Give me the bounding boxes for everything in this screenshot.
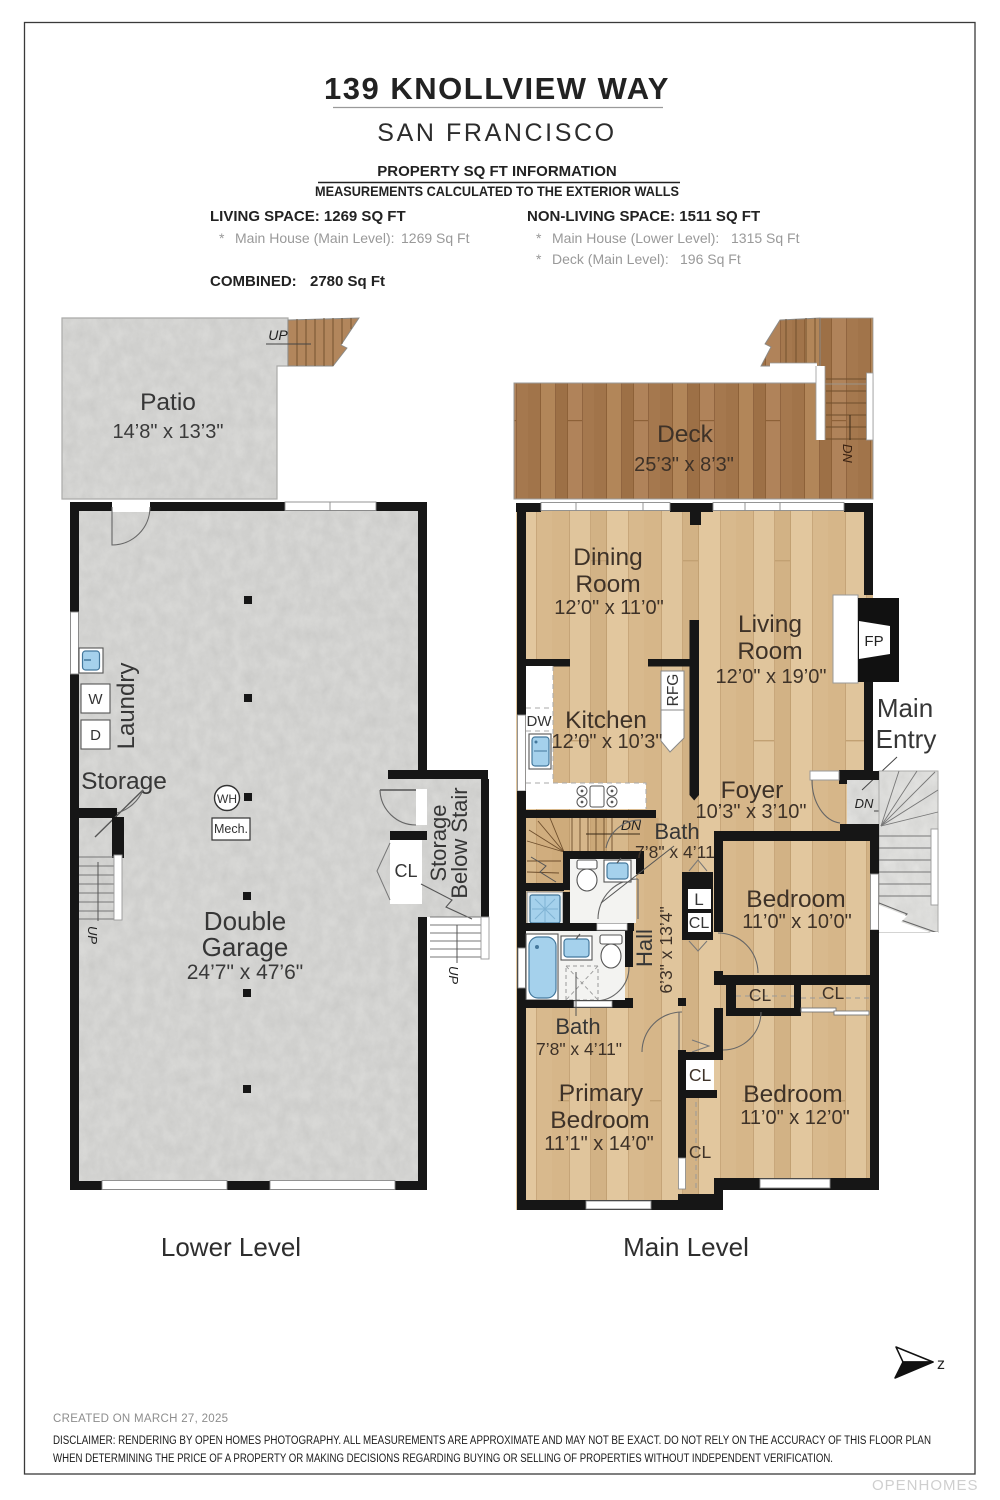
svg-text:Living: Living [738, 611, 802, 638]
svg-text:Main House (Lower Level):: Main House (Lower Level): [552, 230, 719, 246]
svg-text:COMBINED:: COMBINED: [210, 273, 297, 290]
svg-text:D: D [90, 727, 101, 744]
svg-text:FP: FP [864, 633, 883, 650]
svg-text:Bath: Bath [654, 819, 699, 844]
svg-text:Entry: Entry [876, 724, 937, 754]
svg-text:7’8" x 4’11": 7’8" x 4’11" [635, 842, 721, 862]
svg-text:MEASUREMENTS CALCULATED TO THE: MEASUREMENTS CALCULATED TO THE EXTERIOR … [315, 183, 679, 199]
svg-text:Bath: Bath [555, 1014, 600, 1039]
svg-text:6’3" x 13’4": 6’3" x 13’4" [656, 906, 676, 993]
svg-text:Laundry: Laundry [113, 663, 140, 750]
svg-text:Deck (Main Level):: Deck (Main Level): [552, 251, 669, 267]
svg-text:SAN FRANCISCO: SAN FRANCISCO [377, 119, 616, 147]
svg-text:Kitchen: Kitchen [565, 707, 647, 734]
svg-text:Room: Room [575, 571, 640, 598]
svg-text:*: * [219, 230, 225, 246]
svg-text:Primary: Primary [559, 1080, 644, 1107]
svg-text:UP: UP [268, 327, 288, 343]
svg-text:WH: WH [217, 792, 237, 806]
svg-text:Main Level: Main Level [623, 1232, 749, 1262]
svg-text:OPENHOMES: OPENHOMES [872, 1477, 979, 1494]
svg-text:DN: DN [840, 444, 855, 463]
svg-text:*: * [536, 251, 542, 267]
svg-text:DISCLAIMER: RENDERING BY OPEN: DISCLAIMER: RENDERING BY OPEN HOMES PHOT… [53, 1435, 931, 1447]
svg-text:Dining: Dining [573, 544, 642, 571]
svg-text:139 KNOLLVIEW WAY: 139 KNOLLVIEW WAY [324, 71, 670, 106]
svg-text:Hall: Hall [632, 929, 657, 967]
svg-text:CL: CL [689, 1065, 712, 1085]
svg-text:7’8" x 4’11": 7’8" x 4’11" [536, 1039, 622, 1059]
svg-text:Bedroom: Bedroom [746, 886, 845, 913]
svg-text:CL: CL [689, 915, 710, 932]
svg-text:DN: DN [855, 796, 874, 811]
svg-text:Lower Level: Lower Level [161, 1232, 301, 1262]
svg-text:W: W [88, 691, 103, 708]
svg-text:24’7" x 47’6": 24’7" x 47’6" [187, 961, 303, 984]
svg-text:12’0" x 19’0": 12’0" x 19’0" [716, 666, 827, 688]
svg-text:CREATED ON MARCH 27, 2025: CREATED ON MARCH 27, 2025 [53, 1413, 228, 1425]
svg-text:UP: UP [446, 966, 461, 984]
svg-text:Main: Main [877, 693, 933, 723]
svg-text:L: L [694, 890, 703, 909]
svg-text:2780 Sq Ft: 2780 Sq Ft [310, 273, 385, 290]
svg-text:Deck: Deck [657, 421, 714, 448]
svg-text:196 Sq Ft: 196 Sq Ft [680, 251, 741, 267]
svg-text:CL: CL [394, 861, 417, 881]
svg-text:CL: CL [689, 1142, 712, 1162]
svg-text:Below Stair: Below Stair [447, 787, 472, 898]
svg-text:11’0" x 12’0": 11’0" x 12’0" [740, 1107, 849, 1129]
svg-text:Garage: Garage [202, 932, 289, 962]
svg-text:CL: CL [822, 983, 845, 1003]
svg-text:14’8" x 13’3": 14’8" x 13’3" [113, 421, 224, 443]
svg-text:*: * [536, 230, 542, 246]
svg-text:12’0" x 11’0": 12’0" x 11’0" [554, 597, 663, 619]
svg-text:NON-LIVING SPACE: 1511 SQ FT: NON-LIVING SPACE: 1511 SQ FT [527, 208, 760, 225]
svg-text:DW: DW [527, 713, 553, 730]
svg-text:DN: DN [621, 817, 642, 833]
svg-text:RFG: RFG [665, 674, 682, 707]
svg-text:Bedroom: Bedroom [743, 1081, 842, 1108]
svg-text:CL: CL [749, 985, 772, 1005]
svg-text:Room: Room [737, 638, 802, 665]
svg-text:1269 Sq Ft: 1269 Sq Ft [401, 230, 470, 246]
svg-text:PROPERTY SQ FT INFORMATION: PROPERTY SQ FT INFORMATION [377, 163, 616, 180]
svg-text:25’3" x 8’3": 25’3" x 8’3" [634, 454, 734, 476]
svg-text:Patio: Patio [140, 389, 196, 416]
svg-text:11’1" x 14’0": 11’1" x 14’0" [544, 1133, 653, 1155]
svg-text:Mech.: Mech. [214, 822, 248, 836]
svg-text:z: z [937, 1356, 945, 1373]
svg-text:Storage: Storage [81, 768, 167, 795]
svg-text:Bedroom: Bedroom [550, 1107, 649, 1134]
svg-text:LIVING SPACE: 1269 SQ FT: LIVING SPACE: 1269 SQ FT [210, 208, 406, 225]
svg-text:10’3" x 3’10": 10’3" x 3’10" [696, 801, 807, 823]
svg-text:UP: UP [85, 926, 100, 944]
svg-text:12’0" x 10’3": 12’0" x 10’3" [552, 731, 663, 753]
svg-text:11’0" x 10’0": 11’0" x 10’0" [742, 911, 851, 933]
svg-text:WHEN DETERMINING THE PRICE OF: WHEN DETERMINING THE PRICE OF A PROPERTY… [53, 1453, 833, 1465]
svg-text:1315 Sq Ft: 1315 Sq Ft [731, 230, 800, 246]
svg-text:Main House (Main Level):: Main House (Main Level): [235, 230, 395, 246]
svg-text:Foyer: Foyer [721, 777, 784, 804]
